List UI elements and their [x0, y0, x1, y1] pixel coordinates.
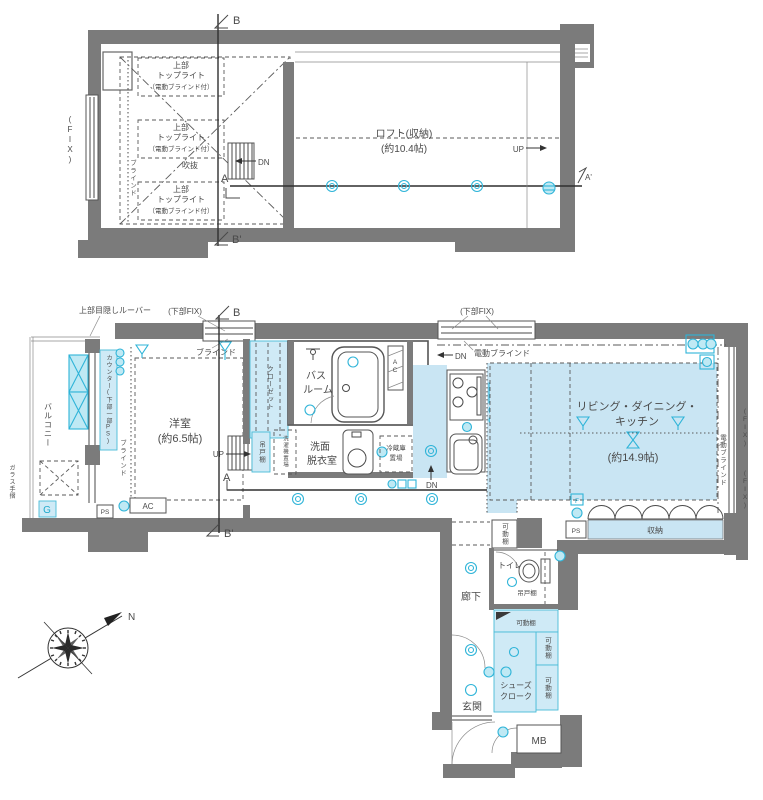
toilet-label: トイレ [498, 561, 522, 570]
flag-a-loft [226, 188, 240, 198]
switch-icons [388, 480, 416, 488]
bath-label-1: バス [306, 370, 326, 382]
loft-room: ロフト(収納) (約10.4帖) UP [295, 52, 560, 228]
stove [450, 374, 483, 420]
downlight-icon [466, 563, 477, 574]
meter-box: MB [443, 715, 582, 778]
toplight-1-l1: 上部 [173, 60, 189, 70]
loft-size: (約10.4帖) [381, 142, 427, 155]
main-wall-right-top [724, 323, 738, 347]
entrance-wing: 可動棚 トイレ 吊戸棚 廊下 可動棚 可動棚 可動棚 [432, 518, 582, 778]
exhaust-fan-icon [501, 667, 511, 677]
entrance-label: 玄関 [462, 700, 482, 713]
wall-west-closet-2 [243, 505, 250, 518]
loft-inner-wall [283, 62, 294, 228]
marker-b-loft: B [233, 15, 240, 27]
marker-b-prime-loft: B' [232, 234, 241, 246]
toplight-1: 上部 トップライト （電動ブラインド付） [138, 58, 224, 96]
toplight-3-l2: トップライト [157, 195, 205, 204]
flag-b-main-top [216, 306, 229, 319]
wall-west-closet [243, 339, 250, 444]
exhaust-fan-icon [484, 667, 494, 677]
loft-wall-bottom-left [78, 240, 208, 258]
bath-label-2: ルーム [303, 384, 333, 396]
vent-icon [119, 501, 129, 511]
compass-north-label: N [128, 612, 135, 623]
loft-void-area [120, 57, 290, 224]
loft-fix-label: (FIX) [66, 115, 75, 165]
toplight-3-l3: （電動ブラインド付） [149, 206, 214, 215]
fix-right-1: (FIX) [742, 408, 749, 448]
exhaust-fan-icon [555, 551, 565, 561]
entry-door-arc-large [452, 722, 495, 765]
main-wall-bottom-left [22, 518, 448, 532]
loft-wall-right [560, 30, 575, 232]
louver-label: 上部目隠しルーバー [79, 305, 151, 315]
balcony-label: バルコニー [44, 403, 53, 448]
kitchen-walkway [413, 365, 447, 478]
ps-right-label: PS [572, 528, 581, 535]
west-blind-label: ブラインド [119, 438, 127, 477]
loft-plan: (FIX) 上部 トップライト （電動ブラインド付） 上部 トップライト （電動… [66, 14, 595, 258]
marker-a-loft: A [221, 173, 229, 185]
ldk-size: (約14.9帖) [608, 450, 659, 464]
loft-wall-top [88, 30, 575, 44]
bathtub [332, 347, 384, 422]
ldk-label-1: リビング・ダイニング・ [577, 399, 698, 413]
washer-space-label: 洗濯機置場 [282, 435, 289, 469]
shoe-closet-label-2: クローク [500, 692, 532, 701]
ps-left-label: PS [101, 509, 110, 516]
movable-shelf-column-2: 可動棚 [536, 665, 558, 710]
toplight-1-l2: トップライト [157, 71, 205, 80]
motor-blind-right: 電動ブラインド [719, 433, 727, 486]
toilet-room: トイレ 吊戸棚 [489, 548, 578, 610]
bath-ac-label: AC [392, 359, 399, 375]
dn-top-label: DN [455, 352, 467, 361]
compass: N [18, 612, 135, 678]
west-room-size: (約6.5帖) [158, 431, 203, 445]
kitchen-counter [447, 370, 485, 474]
fan-label: F [575, 498, 579, 505]
marker-b-prime-main: B' [224, 528, 233, 540]
marker-a-prime-loft: A' [585, 173, 592, 182]
west-room-name: 洋室 [169, 416, 191, 430]
floor-plan-drawing: (FIX) 上部 トップライト （電動ブラインド付） 上部 トップライト （電動… [0, 0, 763, 800]
movable-shelf-column-1: 可動棚 [536, 632, 558, 665]
window-kitchen [438, 321, 535, 339]
shoe-closet-label-1: シューズ [500, 680, 532, 690]
window-west-room [203, 321, 255, 341]
void-label: 吹抜 [182, 160, 198, 170]
downlight-icons-loft [327, 181, 556, 195]
floor-plan-page: { "colors": { "wall": "#7b7b7b", "accent… [0, 0, 763, 800]
main-wall-bottom-right [557, 540, 748, 554]
toplight-2-l3: （電動ブラインド付） [149, 144, 214, 153]
toplight-2: 上部 トップライト （電動ブラインド付） [138, 120, 224, 158]
hallway-label: 廊下 [461, 590, 481, 603]
glass-rail-label: ガラス手摺 [8, 464, 15, 500]
main-plan: (FIX) (FIX) 電動ブラインド 上部目隠しルーバー バルコニー ガラス手… [8, 305, 749, 560]
downlight-icon [466, 645, 477, 656]
wash-label-2: 脱衣室 [307, 454, 337, 467]
dn-bottom-label: DN [426, 481, 438, 490]
loft-stairs-down [228, 143, 256, 179]
gas-label: G [43, 505, 51, 516]
tail-wall-left [440, 518, 452, 718]
compass-needle [104, 612, 122, 626]
lower-fix-left: (下部FIX) [168, 306, 202, 316]
toplight-2-l2: トップライト [157, 133, 205, 142]
fridge-label-2: 置場 [390, 453, 404, 462]
toplight-1-l3: （電動ブラインド付） [149, 82, 214, 91]
exhaust-fan-icon [498, 727, 508, 737]
wall-above-toilet [517, 518, 542, 548]
loft-name: ロフト(収納) [376, 127, 433, 140]
ldk-label-2: キッチン [615, 415, 659, 428]
blind-top-label: ブラインド [196, 347, 236, 357]
wall-bath-kitchen [407, 340, 413, 424]
toplight-2-l1: 上部 [173, 122, 189, 132]
loft-wall-bottom [88, 228, 575, 242]
toplight-3-l1: 上部 [173, 184, 189, 194]
downlight-icon [466, 685, 477, 696]
shoe-closet: シューズ クローク [484, 632, 536, 712]
sink [450, 434, 482, 474]
loft-dn-label: DN [258, 158, 270, 167]
fix-right-2: (FIX) [742, 470, 749, 510]
loft-blind-label: ブラインド [129, 158, 137, 197]
lower-fix-right: (下部FIX) [460, 306, 494, 316]
storage-closet: 収納 PS [566, 506, 723, 539]
downlight-icon-inner [469, 648, 474, 653]
vent-icon [463, 423, 472, 432]
ac-label: AC [142, 502, 153, 511]
movable-shelf-label: 可動棚 [516, 618, 536, 627]
meter-box-label: MB [532, 736, 547, 747]
toplight-3: 上部 トップライト （電動ブラインド付） [138, 182, 224, 220]
bath-ac-unit: AC [388, 346, 403, 390]
fridge-label-1: 冷蔵庫 [386, 443, 406, 452]
storage-label: 収納 [647, 525, 663, 535]
downlight-icon [508, 578, 517, 587]
washbasin [343, 430, 373, 474]
loft-up-label: UP [513, 145, 524, 154]
downlight-icon-inner [469, 566, 474, 571]
marker-b-main: B [233, 307, 240, 319]
movable-shelf-box: 可動棚 [494, 610, 558, 632]
toilet-cupboard-label: 吊戸棚 [517, 588, 537, 597]
loft-wall-bottom-right [455, 242, 575, 252]
wash-label-1: 洗面 [310, 441, 330, 453]
main-wall-bottom-bump [88, 532, 148, 552]
flag-b-top [215, 15, 228, 28]
stairs-up [226, 436, 256, 470]
motor-blind-top-label: 電動ブラインド [474, 348, 530, 358]
tail-wall-left-chunk [432, 712, 452, 730]
counter-ps-label: カウンター(下部一部PS) [105, 355, 112, 446]
